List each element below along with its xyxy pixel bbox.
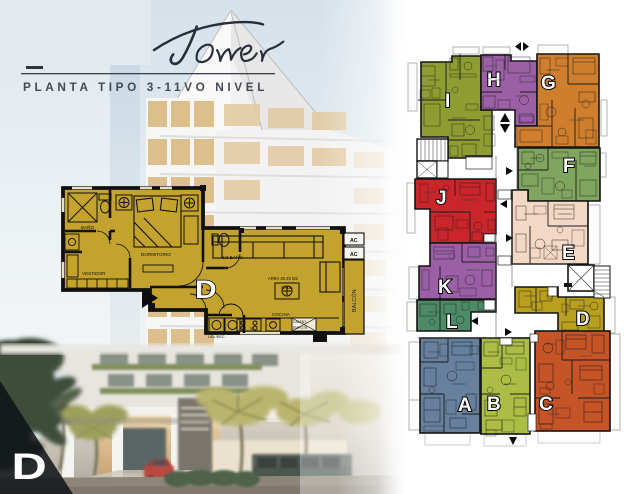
- svg-text:AC: AC: [350, 238, 358, 244]
- svg-text:B: B: [487, 394, 501, 415]
- svg-text:A: A: [458, 395, 472, 416]
- svg-text:BAÑO: BAÑO: [81, 224, 94, 230]
- svg-text:1/2 BAÑO: 1/2 BAÑO: [222, 254, 243, 260]
- svg-text:L: L: [446, 312, 458, 333]
- svg-text:EMPOTR.: EMPOTR.: [293, 326, 309, 330]
- svg-text:D: D: [12, 447, 47, 488]
- svg-text:N: N: [250, 326, 253, 331]
- svg-text:F: F: [563, 156, 575, 177]
- svg-text:PLANTA TIPO 3-11VO NIVEL: PLANTA TIPO 3-11VO NIVEL: [23, 80, 268, 94]
- svg-text:COCINA: COCINA: [272, 312, 291, 317]
- svg-text:D: D: [576, 309, 590, 330]
- svg-text:J: J: [436, 188, 447, 209]
- svg-text:DORMITORIO: DORMITORIO: [141, 252, 171, 257]
- svg-text:K: K: [438, 277, 452, 298]
- svg-text:I: I: [445, 91, 450, 112]
- svg-text:C: C: [539, 394, 553, 415]
- svg-text:SALA: SALA: [281, 285, 294, 290]
- svg-text:D: D: [195, 275, 217, 303]
- svg-text:AREA 40.25 M2: AREA 40.25 M2: [268, 276, 298, 281]
- svg-text:G: G: [541, 73, 556, 94]
- svg-text:BALCÓN: BALCÓN: [351, 289, 358, 312]
- svg-text:LAV./SEC.: LAV./SEC.: [208, 335, 226, 339]
- svg-text:VESTIDOR: VESTIDOR: [82, 271, 106, 276]
- svg-text:AC: AC: [350, 252, 358, 258]
- svg-text:CALENT.: CALENT.: [293, 320, 307, 324]
